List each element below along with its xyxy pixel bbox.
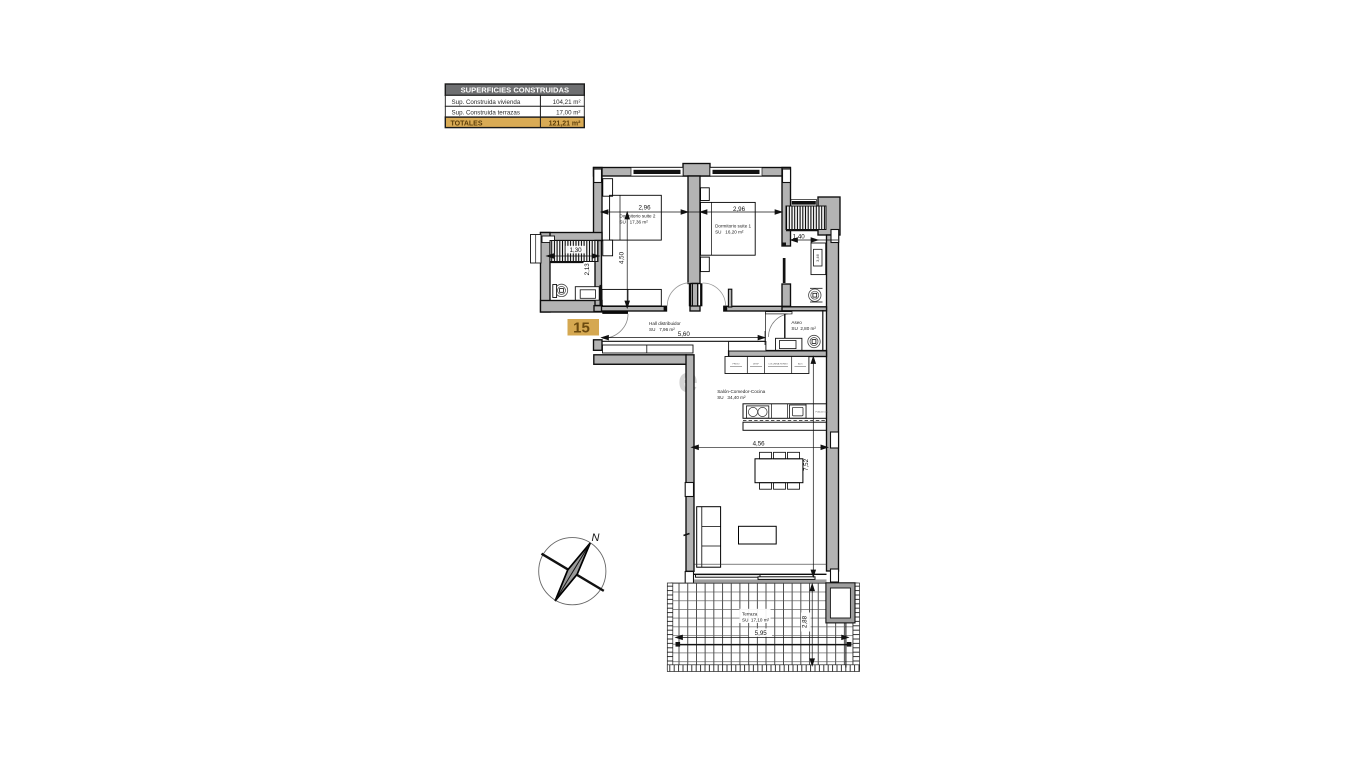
svg-text:2,96: 2,96	[638, 205, 651, 212]
svg-text:N: N	[592, 532, 600, 544]
svg-text:15: 15	[573, 320, 590, 337]
svg-text:SUPERFICIES CONSTRUIDAS: SUPERFICIES CONSTRUIDAS	[461, 86, 569, 95]
svg-text:FRIGO: FRIGO	[733, 364, 740, 366]
svg-text:SU 17,36 m²: SU 17,36 m²	[619, 220, 648, 225]
svg-text:1,30: 1,30	[570, 247, 583, 254]
svg-text:3,46: 3,46	[815, 253, 820, 262]
svg-text:AUX: AUX	[798, 363, 803, 366]
svg-text:SU 34,40 m²: SU 34,40 m²	[717, 395, 746, 400]
svg-text:PLACA COC: PLACA COC	[816, 411, 829, 414]
svg-text:4,56: 4,56	[753, 440, 766, 447]
svg-text:Salón-Comedor-Cocina: Salón-Comedor-Cocina	[717, 389, 765, 394]
svg-text:2,96: 2,96	[733, 206, 746, 213]
svg-text:104,21 m²: 104,21 m²	[553, 99, 581, 106]
svg-text:2,88: 2,88	[802, 615, 809, 628]
svg-text:121,21 m²: 121,21 m²	[549, 120, 582, 127]
svg-text:Aseo: Aseo	[791, 320, 802, 325]
svg-text:Hall distribuidor: Hall distribuidor	[649, 321, 681, 326]
svg-text:SU 2,80 m²: SU 2,80 m²	[791, 326, 816, 331]
svg-text:TOTALES: TOTALES	[451, 120, 483, 127]
svg-text:5,95: 5,95	[755, 630, 768, 637]
svg-text:DESP: DESP	[753, 364, 759, 366]
svg-text:SU 17,10 m²: SU 17,10 m²	[742, 618, 770, 623]
svg-text:2,13: 2,13	[584, 263, 591, 276]
svg-text:Sup. Construida vivienda: Sup. Construida vivienda	[452, 99, 521, 106]
svg-text:SU 16,20 m²: SU 16,20 m²	[715, 229, 744, 234]
svg-text:SU 7,96 m²: SU 7,96 m²	[649, 327, 675, 332]
svg-text:COLUMNA HORNO: COLUMNA HORNO	[768, 363, 788, 366]
svg-text:Sup. Construida terrazas: Sup. Construida terrazas	[452, 110, 520, 117]
svg-text:Dormitorio suite 1: Dormitorio suite 1	[715, 223, 751, 228]
svg-text:1,40: 1,40	[793, 234, 806, 241]
svg-text:4,50: 4,50	[619, 251, 626, 264]
svg-text:Terraza: Terraza	[742, 612, 758, 617]
svg-text:17,00 m²: 17,00 m²	[556, 110, 580, 117]
svg-text:7,52: 7,52	[803, 458, 810, 471]
svg-text:Dormitorio suite 2: Dormitorio suite 2	[619, 214, 655, 219]
svg-text:5,60: 5,60	[678, 331, 691, 338]
